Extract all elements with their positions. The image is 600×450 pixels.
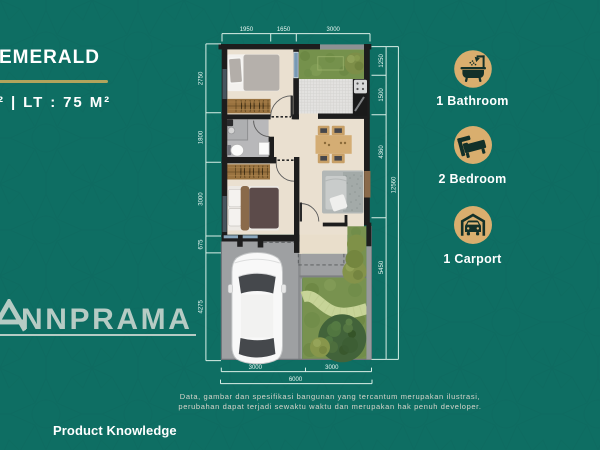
svg-text:3000: 3000 xyxy=(327,27,341,33)
svg-text:1650: 1650 xyxy=(277,27,291,33)
svg-text:1500: 1500 xyxy=(379,88,385,102)
svg-text:675: 675 xyxy=(198,239,204,250)
svg-text:1800: 1800 xyxy=(198,130,204,144)
svg-text:3000: 3000 xyxy=(325,365,339,371)
svg-text:2750: 2750 xyxy=(198,71,204,85)
svg-text:6000: 6000 xyxy=(289,377,303,383)
svg-text:4275: 4275 xyxy=(198,299,204,313)
svg-text:3000: 3000 xyxy=(249,365,263,371)
svg-text:5450: 5450 xyxy=(379,260,385,274)
svg-text:4360: 4360 xyxy=(379,145,385,159)
svg-text:3000: 3000 xyxy=(198,192,204,206)
svg-text:1950: 1950 xyxy=(240,27,254,33)
svg-text:1250: 1250 xyxy=(379,54,385,68)
